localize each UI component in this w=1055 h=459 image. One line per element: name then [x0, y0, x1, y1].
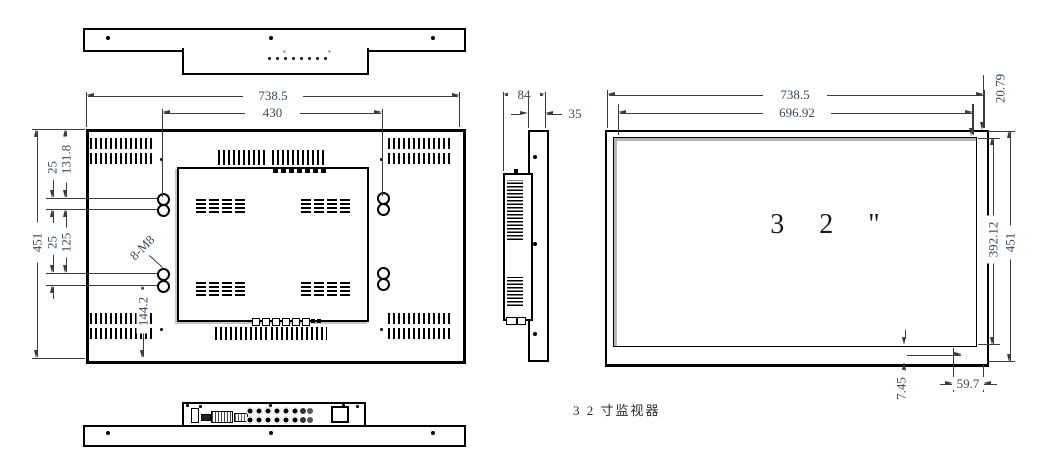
dim-top-to-hole: 131.8 — [60, 137, 73, 183]
vent-grid — [314, 197, 324, 213]
arrowhead — [618, 110, 626, 114]
vent-hole-dot — [300, 57, 303, 60]
dim-hole-pitch-upper: 25 — [46, 157, 59, 179]
dim-panel-depth: 35 — [563, 107, 587, 120]
screen — [613, 137, 977, 347]
screw-dot — [356, 405, 359, 408]
arrowhead — [63, 209, 67, 217]
arrowhead — [86, 93, 94, 97]
connector-mark — [514, 169, 518, 173]
vent-grid — [235, 280, 245, 296]
dim-rear-height: 451 — [31, 223, 44, 263]
arrowhead — [990, 337, 994, 345]
connector-mark — [281, 169, 286, 173]
dim-depth: 84 — [508, 88, 540, 101]
vent-slots — [271, 327, 327, 340]
connector-mark — [292, 318, 300, 326]
mounting-hole — [377, 278, 390, 291]
vent-grid — [222, 197, 232, 213]
extension-line — [973, 104, 974, 135]
arrowhead — [902, 337, 906, 345]
vent-grid — [340, 197, 350, 213]
extension-line — [32, 129, 85, 130]
vent-slots — [507, 180, 523, 240]
arrowhead — [954, 352, 962, 356]
vent-slots — [218, 150, 267, 165]
vent-grid — [222, 280, 232, 296]
bnc-connector — [246, 407, 254, 415]
drawing-caption: 3 2 寸监视器 — [573, 404, 703, 417]
power-inlet — [331, 406, 349, 423]
dim-hole-to-bottom: 144.2 — [137, 290, 150, 334]
bnc-connector — [282, 407, 290, 415]
arrowhead — [50, 285, 54, 293]
vent-hole-dot — [292, 57, 295, 60]
screw-dot — [199, 405, 202, 408]
screw-dot — [533, 242, 537, 246]
extension-line — [86, 92, 87, 127]
vent-grid — [301, 280, 311, 296]
dim-screen-height: 392.12 — [987, 216, 1000, 264]
bnc-connector — [291, 416, 299, 424]
connector-mark — [282, 318, 290, 326]
arrowhead — [969, 128, 973, 136]
screw-dot — [106, 36, 110, 40]
extension-line — [618, 104, 619, 135]
vent-grid — [327, 197, 337, 213]
extension-line — [46, 273, 157, 274]
arrowhead — [990, 137, 994, 145]
bnc-connector — [264, 407, 272, 415]
vent-hole-dot — [268, 57, 271, 60]
connector-mark — [289, 169, 294, 173]
arrowhead — [50, 265, 54, 273]
dim-screen-width: 696.92 — [763, 106, 831, 119]
connector-mark — [262, 318, 270, 326]
connector-mark — [317, 319, 321, 323]
connector-mark — [252, 318, 260, 326]
bnc-connector — [255, 416, 263, 424]
vent-grid — [340, 280, 350, 296]
vent-slots — [388, 153, 450, 164]
arrowhead — [63, 190, 67, 198]
vent-grid — [314, 280, 324, 296]
screw-dot — [380, 328, 383, 331]
vent-grid — [301, 197, 311, 213]
screw-dot — [533, 155, 537, 159]
arrowhead — [1007, 130, 1011, 138]
usb-port — [191, 408, 199, 423]
vent-hole-dot — [308, 57, 311, 60]
vent-hole-dot — [276, 57, 279, 60]
mounting-hole — [157, 204, 170, 217]
arrowhead — [50, 190, 54, 198]
extension-line — [46, 198, 157, 199]
screw-dot — [269, 431, 273, 435]
arrowhead — [34, 129, 38, 137]
arrowhead — [1007, 354, 1011, 362]
connector-mark — [313, 169, 318, 173]
dim-line — [983, 75, 984, 128]
extension-line — [459, 92, 460, 127]
vent-slots — [90, 153, 152, 164]
bnc-connector — [291, 407, 299, 415]
bnc-connector — [300, 408, 306, 414]
vent-grid — [196, 280, 206, 296]
screen-size-label: 3 2 " — [757, 208, 907, 242]
top-view-bracket — [182, 48, 369, 75]
screw-dot — [186, 404, 189, 407]
connector-mark — [506, 317, 517, 325]
vent-slots — [388, 138, 450, 149]
vent-grid — [235, 197, 245, 213]
extension-line — [978, 138, 1000, 139]
arrowhead — [983, 381, 991, 385]
vent-grid — [209, 280, 219, 296]
vent-hole-dot — [284, 57, 287, 60]
vent-hole-dot — [316, 57, 319, 60]
connector-mark — [273, 169, 278, 173]
bnc-connector — [255, 407, 263, 415]
arrowhead — [452, 93, 460, 97]
dvi-port — [211, 411, 233, 423]
dim-vesa-width: 430 — [245, 106, 300, 119]
connector-mark — [517, 317, 526, 325]
arrowhead — [374, 110, 382, 114]
dim-line — [511, 114, 520, 115]
arrowhead — [63, 265, 67, 273]
bnc-connector — [307, 417, 313, 423]
arrowhead — [34, 350, 38, 358]
vent-slots — [215, 327, 268, 340]
bnc-connector — [246, 416, 254, 424]
vent-slots — [90, 138, 152, 149]
connector-mark — [321, 169, 326, 173]
vent-slots — [388, 313, 450, 324]
extension-line — [528, 99, 529, 128]
vent-slots — [388, 328, 450, 339]
vent-slots — [272, 150, 327, 165]
extension-line — [503, 92, 504, 171]
arrowhead — [980, 122, 984, 130]
extension-line — [162, 109, 163, 197]
bnc-connector — [273, 416, 281, 424]
arrowhead — [545, 111, 553, 115]
connector-mark — [272, 318, 280, 326]
screw-dot — [431, 431, 435, 435]
vent-grid — [327, 280, 337, 296]
dim-corner-offset: 59.7 — [952, 377, 984, 390]
dim-rear-width: 738.5 — [243, 89, 303, 102]
engineering-drawing-canvas: 738.5 430 451 131.8 25 125 — [0, 0, 1055, 459]
bnc-connector — [307, 408, 313, 414]
arrowhead — [140, 350, 144, 358]
dim-front-width: 738.5 — [763, 88, 827, 101]
dim-hole-pitch-lower: 25 — [46, 232, 59, 254]
arrowhead — [902, 362, 906, 370]
bnc-connector — [273, 407, 281, 415]
extension-line — [984, 90, 985, 128]
vent-hole-dot — [324, 57, 327, 60]
screw-dot — [269, 404, 272, 407]
bnc-connector — [282, 416, 290, 424]
bnc-connector — [300, 417, 306, 423]
connector-mark — [297, 169, 302, 173]
dim-bezel-bottom: 7.45 — [895, 371, 908, 407]
connector-mark — [302, 318, 310, 326]
arrowhead — [50, 209, 54, 217]
switch — [201, 414, 211, 421]
vent-grid — [196, 197, 206, 213]
screw-dot — [269, 36, 273, 40]
vent-grid — [209, 197, 219, 213]
connector-mark — [305, 169, 310, 173]
connector-mark — [311, 319, 315, 323]
mounting-hole — [377, 203, 390, 216]
vent-hole-dot — [328, 50, 331, 53]
screw-dot — [431, 36, 435, 40]
vent-slots — [507, 277, 523, 306]
arrowhead — [520, 111, 528, 115]
screw-dot — [160, 328, 163, 331]
dim-front-height: 451 — [1004, 226, 1017, 260]
screw-dot — [533, 332, 537, 336]
arrowhead — [607, 92, 615, 96]
dim-hole-span: 125 — [60, 228, 73, 258]
bottom-view-body — [83, 425, 466, 447]
bnc-connector — [264, 416, 272, 424]
extension-line — [32, 358, 85, 359]
extension-line — [382, 109, 383, 196]
vent-hole-dot — [283, 50, 286, 53]
electronics-enclosure — [177, 167, 369, 322]
arrowhead — [162, 110, 170, 114]
extension-line — [978, 344, 1000, 345]
screw-dot — [106, 431, 110, 435]
mounting-hole — [157, 280, 170, 293]
dim-bezel-top: 20.79 — [994, 68, 1007, 110]
extension-line — [545, 92, 546, 128]
